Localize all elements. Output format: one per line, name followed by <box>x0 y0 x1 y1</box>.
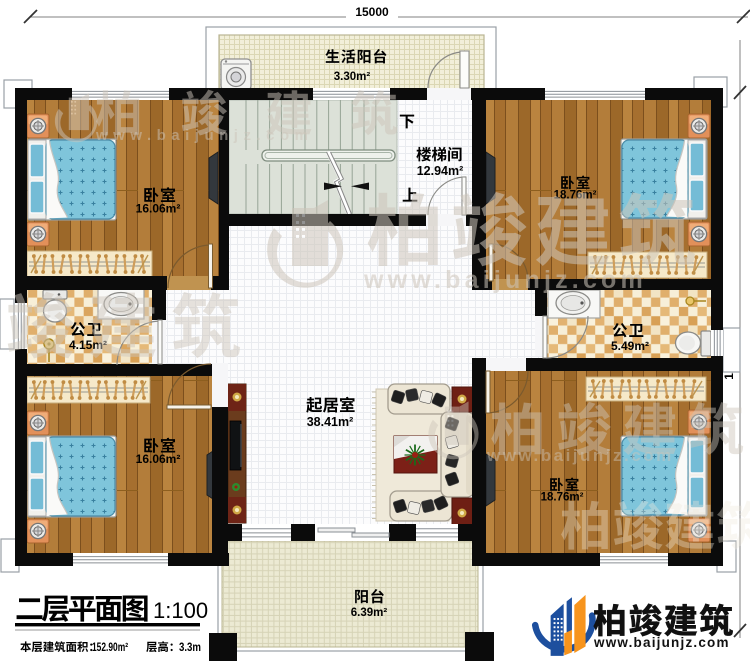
svg-text:www.baijunjz.com: www.baijunjz.com <box>95 127 313 144</box>
svg-text:16.06m²: 16.06m² <box>136 452 181 466</box>
svg-text:15000: 15000 <box>355 5 389 19</box>
svg-text:18.76m²: 18.76m² <box>541 492 584 504</box>
svg-text:3.30m²: 3.30m² <box>334 71 371 83</box>
svg-text:152.90m²: 152.90m² <box>92 640 128 654</box>
svg-text:12.94m²: 12.94m² <box>417 164 464 178</box>
svg-text:www.baijunjz.com: www.baijunjz.com <box>486 446 674 465</box>
svg-text:16.06m²: 16.06m² <box>136 202 181 216</box>
svg-text:www.baijunjz.com: www.baijunjz.com <box>363 266 647 294</box>
svg-text:1:100: 1:100 <box>153 598 208 623</box>
svg-text:5.49m²: 5.49m² <box>611 339 649 353</box>
svg-text:6.39m²: 6.39m² <box>351 607 388 619</box>
svg-text:www.baijunjz.com: www.baijunjz.com <box>593 635 730 650</box>
svg-text:3.3m: 3.3m <box>179 640 201 654</box>
svg-text:38.41m²: 38.41m² <box>307 415 354 429</box>
